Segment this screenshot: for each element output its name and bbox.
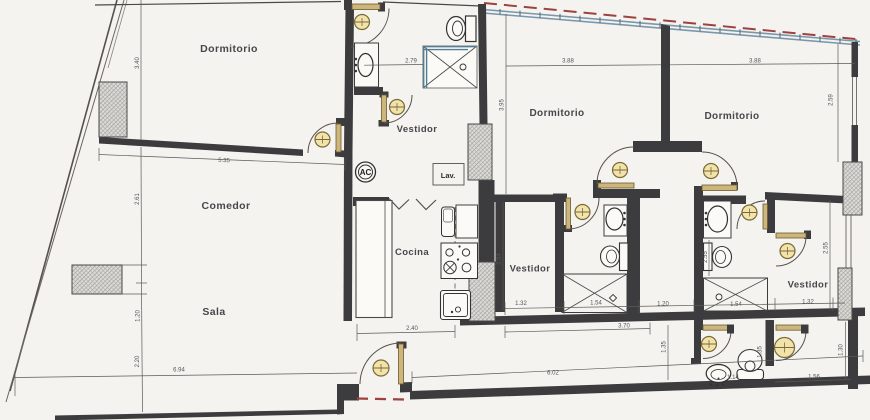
svg-text:5.35: 5.35 bbox=[218, 158, 231, 164]
svg-text:1.56: 1.56 bbox=[808, 375, 820, 381]
svg-text:Sala: Sala bbox=[202, 306, 225, 318]
svg-text:1.32: 1.32 bbox=[515, 301, 527, 307]
svg-text:2.79: 2.79 bbox=[405, 59, 417, 65]
svg-text:1.54: 1.54 bbox=[590, 301, 602, 307]
svg-text:2.40: 2.40 bbox=[406, 326, 418, 332]
svg-text:3.88: 3.88 bbox=[562, 59, 574, 65]
svg-text:6.94: 6.94 bbox=[173, 368, 185, 374]
svg-text:Lav.: Lav. bbox=[441, 171, 455, 180]
svg-text:AC: AC bbox=[360, 168, 372, 177]
svg-text:1.54: 1.54 bbox=[730, 302, 742, 308]
svg-text:Dormitorio: Dormitorio bbox=[704, 111, 759, 122]
svg-text:1.35: 1.35 bbox=[662, 341, 668, 353]
svg-text:2.55: 2.55 bbox=[703, 251, 709, 263]
svg-text:2.54: 2.54 bbox=[497, 253, 503, 265]
svg-text:1.20: 1.20 bbox=[657, 302, 669, 308]
svg-text:1.14: 1.14 bbox=[727, 375, 739, 381]
svg-text:1.32: 1.32 bbox=[802, 300, 814, 306]
svg-text:2.59: 2.59 bbox=[829, 94, 835, 106]
svg-text:Dormitorio: Dormitorio bbox=[529, 108, 584, 119]
svg-text:Cocina: Cocina bbox=[395, 247, 429, 258]
svg-text:1.20: 1.20 bbox=[136, 310, 142, 322]
svg-text:1.30: 1.30 bbox=[839, 344, 845, 356]
svg-text:Vestidor: Vestidor bbox=[788, 280, 829, 291]
svg-text:3.88: 3.88 bbox=[749, 59, 761, 65]
svg-text:3.70: 3.70 bbox=[618, 324, 630, 330]
svg-text:Comedor: Comedor bbox=[202, 200, 251, 212]
svg-text:3.95: 3.95 bbox=[500, 99, 506, 111]
svg-text:6.02: 6.02 bbox=[547, 371, 559, 377]
svg-text:2.61: 2.61 bbox=[135, 193, 141, 205]
svg-text:Vestidor: Vestidor bbox=[397, 124, 438, 135]
svg-text:2.55: 2.55 bbox=[824, 242, 830, 254]
svg-text:3.40: 3.40 bbox=[135, 57, 141, 69]
svg-text:2.20: 2.20 bbox=[135, 355, 141, 367]
svg-text:Dormitorio: Dormitorio bbox=[200, 43, 258, 55]
svg-text:Vestidor: Vestidor bbox=[510, 264, 551, 275]
svg-text:1.35: 1.35 bbox=[758, 346, 764, 358]
